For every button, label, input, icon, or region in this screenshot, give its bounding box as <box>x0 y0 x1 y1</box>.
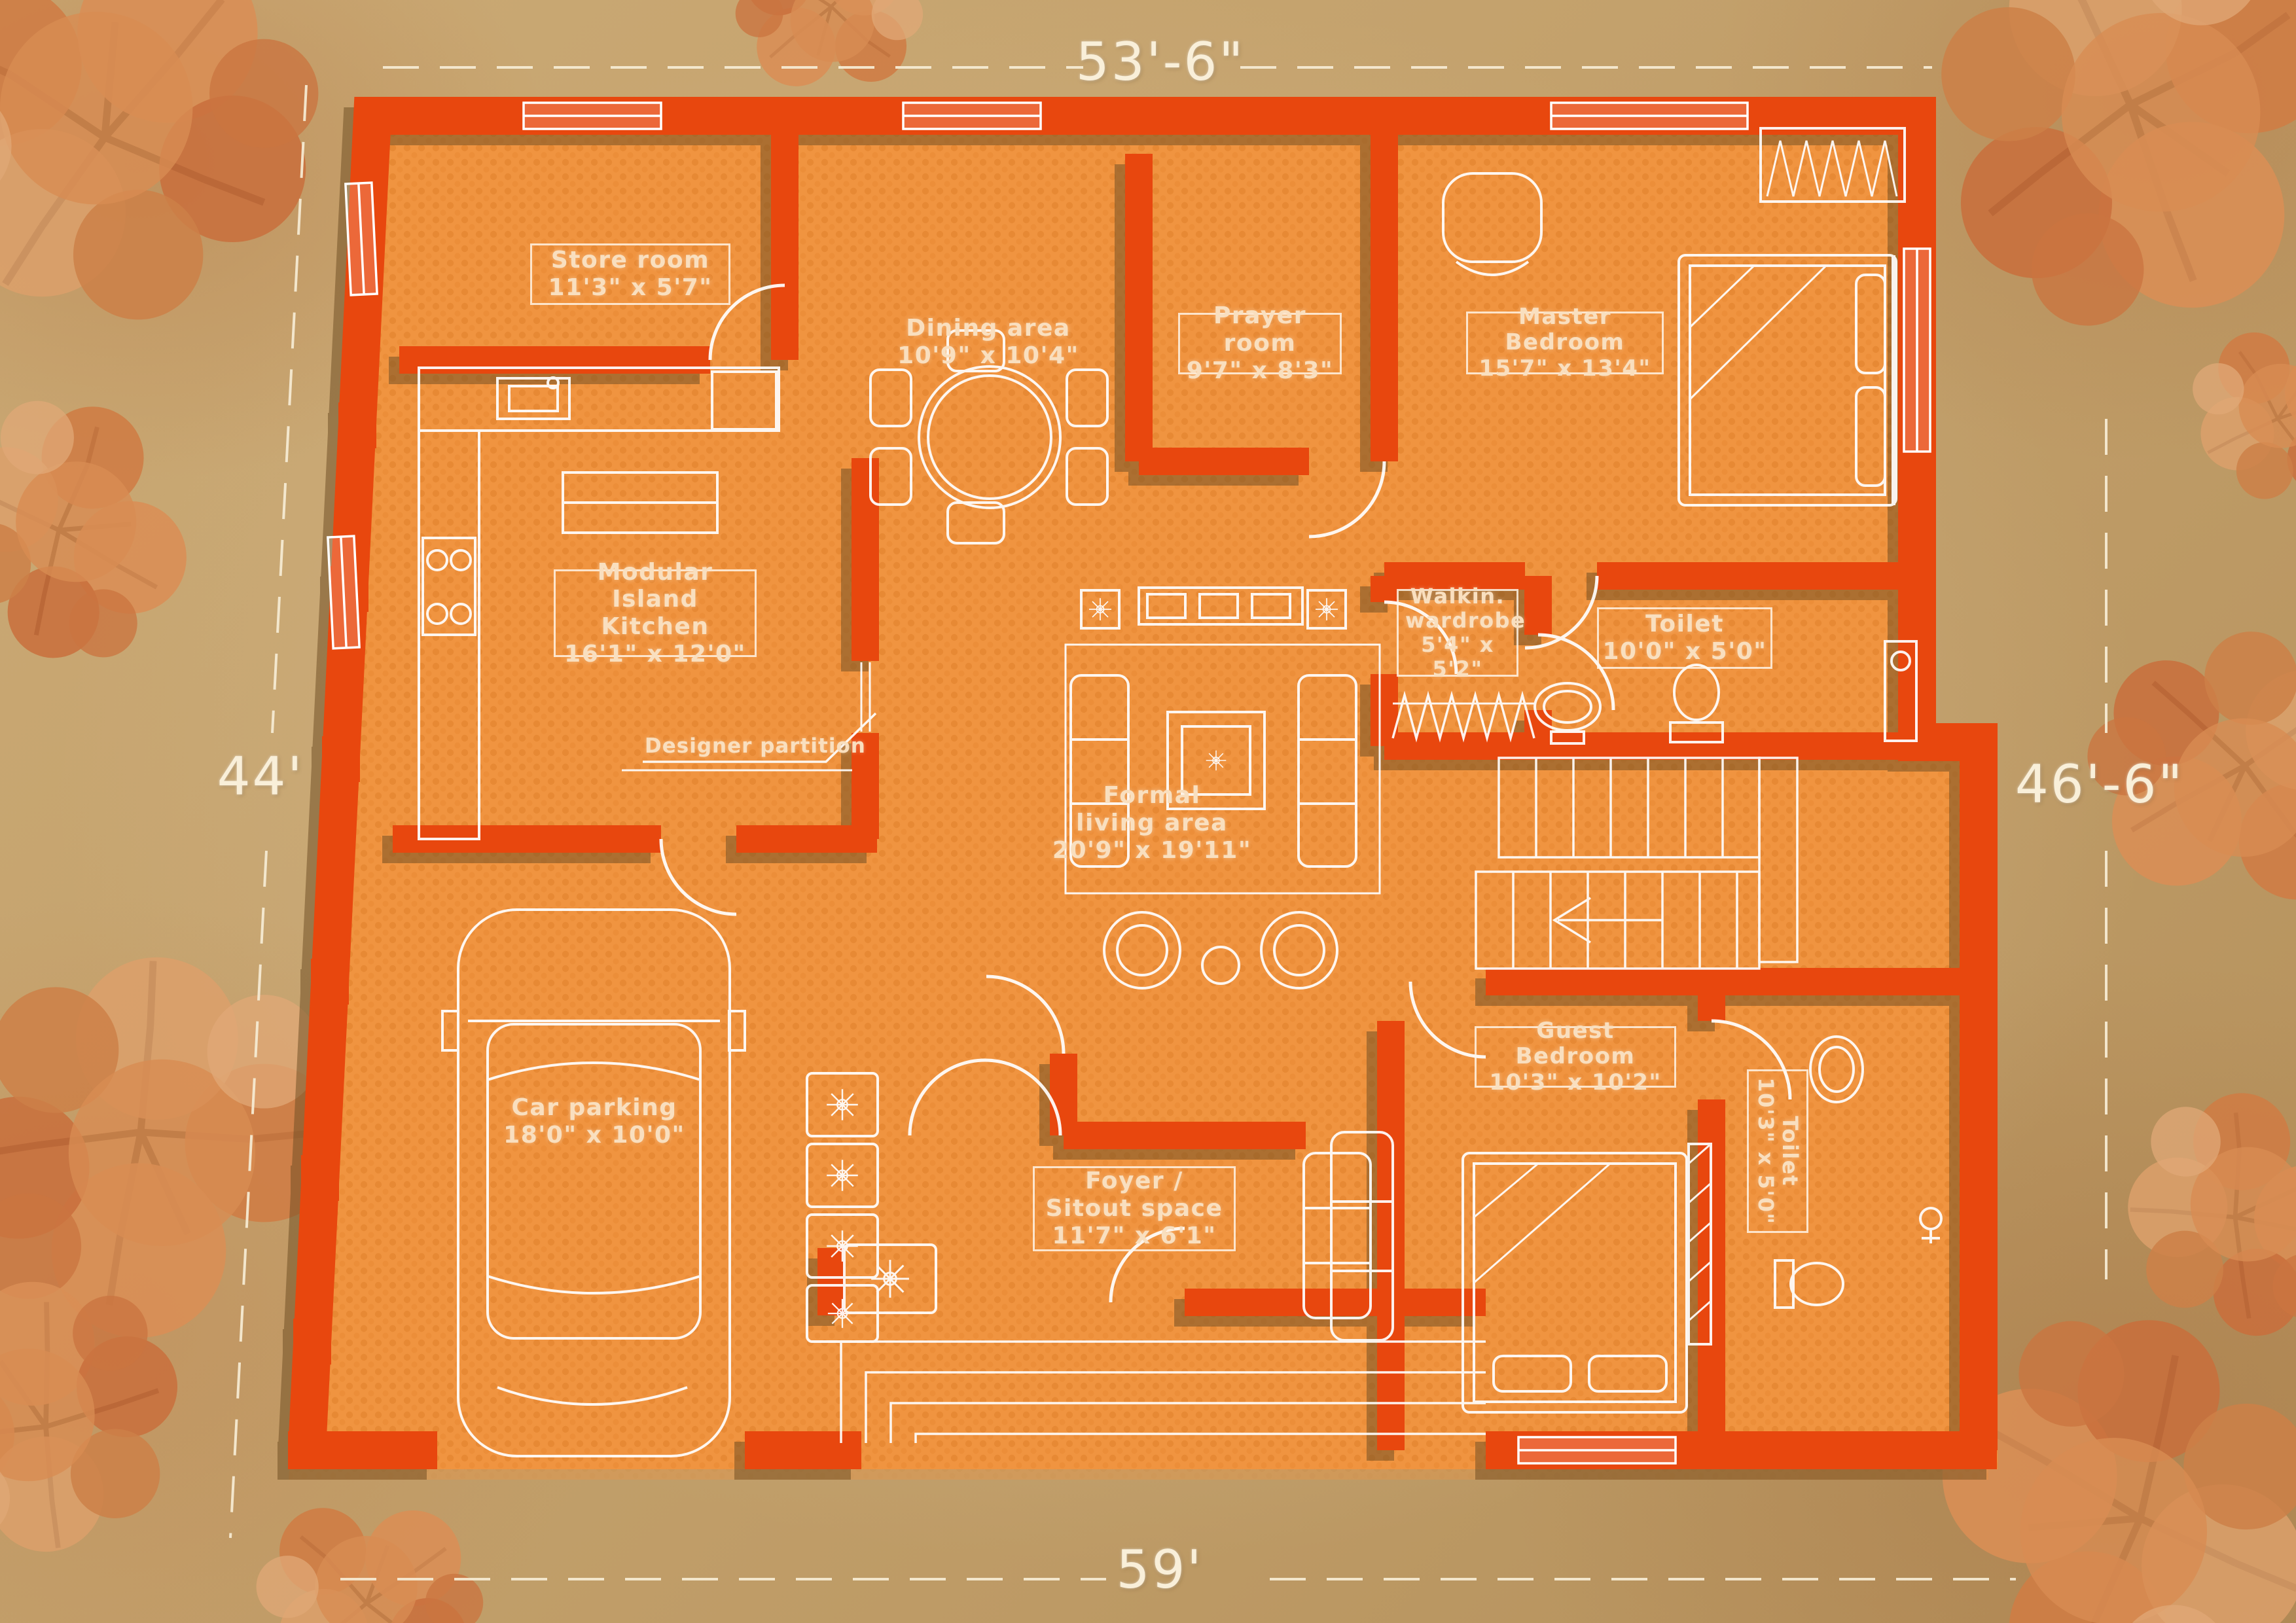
car-parking-name: Car parking <box>512 1094 677 1122</box>
dining-area-name: Dining area <box>906 315 1070 342</box>
dimension-top: 53'-6" <box>1069 31 1252 92</box>
toilet-top-name: Toilet <box>1645 611 1724 638</box>
toilet-top-dims: 10'0" x 5'0" <box>1602 638 1767 666</box>
guest-bedroom-dims: 10'3" x 10'2" <box>1489 1070 1661 1096</box>
toilet-side-label: Toilet 10'3" x 5'0" <box>1747 1069 1808 1233</box>
guest-bedroom-name: Guest Bedroom <box>1477 1018 1674 1070</box>
formal-living-name: Formal living area <box>1064 782 1240 837</box>
kitchen-label: Modular Island Kitchen 16'1" x 12'0" <box>554 569 757 657</box>
prayer-room-label: Prayer room 9'7" x 8'3" <box>1178 313 1342 374</box>
dining-area-label: Dining area 10'9" x 10'4" <box>877 313 1100 372</box>
walkin-wardrobe-dims: 5'4" x 5'2" <box>1399 633 1516 681</box>
toilet-top-label: Toilet 10'0" x 5'0" <box>1597 607 1772 669</box>
dimension-right: 46'-6" <box>2005 754 2195 815</box>
dimension-left: 44' <box>202 746 319 807</box>
dimension-bottom: 59' <box>1094 1539 1225 1600</box>
foyer-dims: 11'7" x 6'1" <box>1052 1222 1216 1250</box>
designer-partition-note: Designer partition <box>645 734 866 758</box>
car-parking-dims: 18'0" x 10'0" <box>503 1122 685 1149</box>
toilet-side-name: Toilet <box>1778 1116 1802 1186</box>
master-bedroom-dims: 15'7" x 13'4" <box>1479 356 1651 382</box>
store-room-dims: 11'3" x 5'7" <box>548 274 712 302</box>
kitchen-dims: 16'1" x 12'0" <box>564 641 746 668</box>
guest-bedroom-label: Guest Bedroom 10'3" x 10'2" <box>1475 1026 1676 1088</box>
prayer-room-dims: 9'7" x 8'3" <box>1187 357 1334 385</box>
walkin-wardrobe-label: Walkin. wardrobe 5'4" x 5'2" <box>1397 589 1518 677</box>
master-bedroom-label: Master Bedroom 15'7" x 13'4" <box>1466 312 1664 374</box>
formal-living-label: Formal living area 20'9" x 19'11" <box>1021 780 1283 866</box>
master-bedroom-name: Master Bedroom <box>1468 304 1662 356</box>
floor-plan-poster: Store room 11'3" x 5'7" Dining area 10'9… <box>0 0 2296 1623</box>
toilet-side-dims: 10'3" x 5'0" <box>1753 1077 1778 1224</box>
store-room-label: Store room 11'3" x 5'7" <box>530 243 730 305</box>
store-room-name: Store room <box>551 247 709 274</box>
foyer-name: Foyer / Sitout space <box>1043 1168 1226 1222</box>
walkin-wardrobe-name: Walkin. wardrobe <box>1405 584 1510 633</box>
kitchen-name: Modular Island Kitchen <box>560 559 750 641</box>
car-parking-label: Car parking 18'0" x 10'0" <box>496 1092 692 1152</box>
prayer-room-name: Prayer room <box>1180 302 1340 357</box>
dining-area-dims: 10'9" x 10'4" <box>897 342 1079 370</box>
foyer-label: Foyer / Sitout space 11'7" x 6'1" <box>1033 1166 1236 1251</box>
formal-living-dims: 20'9" x 19'11" <box>1052 837 1251 865</box>
